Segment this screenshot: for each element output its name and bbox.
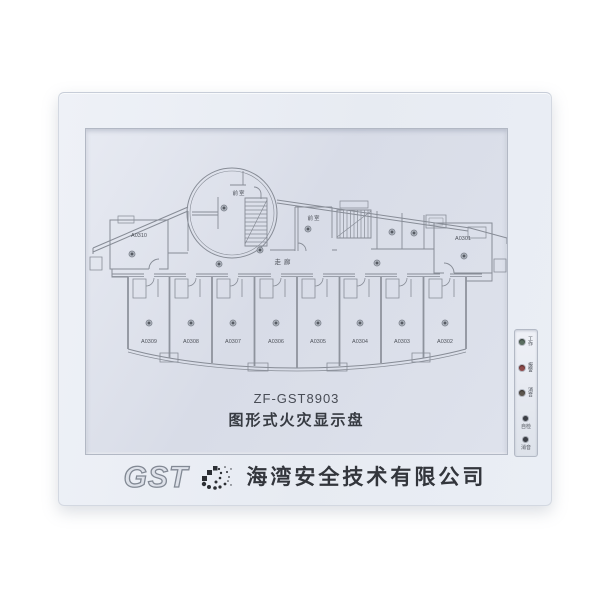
smoke-detector-icon [305, 226, 311, 232]
smoke-detector-icon [442, 320, 448, 326]
mute-button[interactable] [523, 437, 528, 442]
right-staircase [337, 201, 371, 238]
smoke-detector-icon [273, 320, 279, 326]
company-name: 海湾安全技术有限公司 [246, 463, 486, 493]
power-led [519, 339, 525, 345]
product-name: 图形式火灾显示盘 [86, 409, 507, 430]
room-label: A0302 [437, 339, 453, 345]
self-test-button[interactable] [523, 416, 528, 421]
smoke-detector-icon [216, 261, 222, 267]
smoke-detector-icon [389, 229, 395, 235]
self-test-button-label: 自检 [515, 423, 537, 430]
room-label: A0309 [141, 339, 157, 345]
bottom-rooms [128, 277, 466, 371]
room-label: A0310 [131, 233, 147, 239]
plan-labels: A0310 A0301 前室 前室 走廊 A0309 A0308 A0307 A… [131, 189, 471, 345]
lobby-label: 前室 [307, 214, 320, 222]
branding-row: GST 海湾安全技术 [59, 457, 551, 499]
right-lobby [295, 207, 332, 251]
smoke-detector-icon [315, 320, 321, 326]
mute-led-label: 消音 [527, 387, 533, 397]
smoke-detector-icon [257, 247, 263, 253]
indicator-strip: 工作 报警 消音 自检 消音 [514, 329, 538, 457]
smoke-detector-icon [129, 251, 135, 257]
power-led-label: 工作 [527, 336, 533, 346]
gst-logo-text: GST [124, 463, 189, 493]
smoke-detector-icon [146, 320, 152, 326]
circular-stair-tower [187, 168, 277, 258]
smoke-detector-icon [399, 320, 405, 326]
room-bathrooms [133, 278, 454, 298]
floor-plan-drawing: A0310 A0301 前室 前室 走廊 A0309 A0308 A0307 A… [86, 147, 507, 401]
smoke-detector-icon [461, 253, 467, 259]
left-eave [93, 207, 188, 254]
room-label: A0305 [310, 339, 326, 345]
model-number: ZF-GST8903 [86, 391, 507, 406]
room-label: A0303 [394, 339, 410, 345]
right-partitions [371, 211, 434, 249]
mute-button-label: 消音 [515, 444, 537, 451]
mute-led [519, 390, 525, 396]
smoke-detector-icon [188, 320, 194, 326]
room-label: A0304 [352, 339, 368, 345]
room-label: A0308 [183, 339, 199, 345]
etched-floorplan-plate: A0310 A0301 前室 前室 走廊 A0309 A0308 A0307 A… [85, 128, 508, 455]
smoke-detector-icon [411, 230, 417, 236]
gst-swirl-icon [200, 464, 234, 492]
room-label: A0307 [225, 339, 241, 345]
fire-display-panel: A0310 A0301 前室 前室 走廊 A0309 A0308 A0307 A… [58, 92, 552, 506]
smoke-detector-icon [221, 205, 227, 211]
smoke-detector-icon [374, 260, 380, 266]
lobby-label: 前室 [232, 189, 245, 197]
smoke-detector-icon [357, 320, 363, 326]
alarm-led [519, 365, 525, 371]
alarm-led-label: 报警 [527, 362, 533, 372]
smoke-detector-icon [230, 320, 236, 326]
room-label: A0301 [455, 236, 471, 242]
corridor-label: 走廊 [275, 257, 294, 266]
room-label: A0306 [268, 339, 284, 345]
